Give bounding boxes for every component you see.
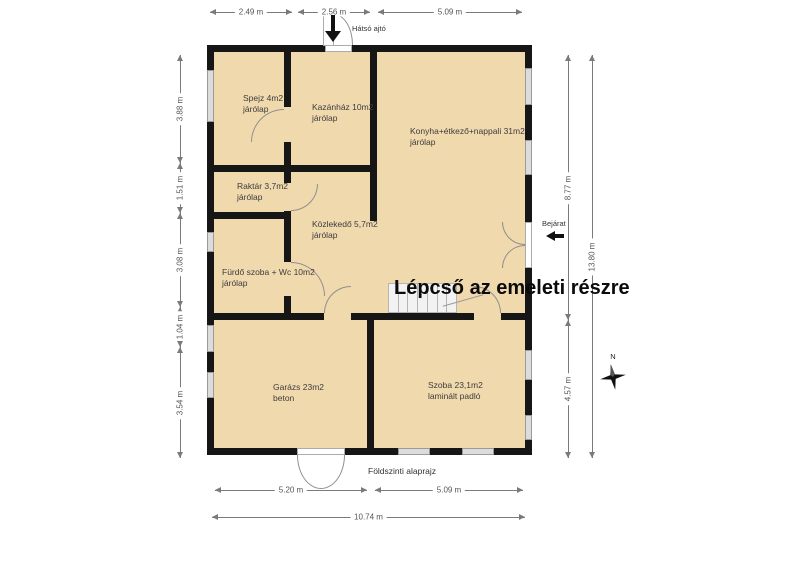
compass-north-label: N xyxy=(610,352,615,361)
room-label-spejz: Spejz 4m2 járólap xyxy=(243,93,283,115)
door-arc-garazs xyxy=(324,286,351,313)
wall-garazs-szoba xyxy=(367,313,374,455)
entrance-label: Bejárat xyxy=(542,219,566,228)
entrance-arrow-stem-icon xyxy=(555,234,564,238)
window-konyha-2 xyxy=(525,140,532,175)
compass-icon: N xyxy=(598,350,628,394)
window-szoba-1 xyxy=(525,350,532,380)
wall-kazanhaz-konyha xyxy=(370,45,377,221)
window-szoba-2 xyxy=(525,415,532,440)
plan-title: Földszinti alaprajz xyxy=(368,466,436,476)
window-furdo xyxy=(207,232,214,252)
floorplan-canvas: Spejz 4m2 járólap Kazánház 10m2 járólap … xyxy=(207,45,532,455)
dim-left-3: 3.08 m xyxy=(180,213,181,307)
window-szoba-3 xyxy=(398,448,430,455)
garage-door-leaf-left xyxy=(297,455,321,489)
wall-middle-3 xyxy=(501,313,532,320)
window-garazs-2 xyxy=(207,372,214,398)
door-gap-backdoor xyxy=(325,45,352,52)
room-label-konyha: Konyha+étkező+nappali 31m2 járólap xyxy=(410,126,525,148)
dim-bottom-outer: 10.74 m xyxy=(212,517,525,518)
window-szoba-4 xyxy=(462,448,494,455)
back-door-label: Hátsó ajtó xyxy=(352,24,386,33)
dim-top-1: 2.49 m xyxy=(210,12,292,13)
room-label-szoba: Szoba 23,1m2 laminált padló xyxy=(428,380,483,402)
wall-middle-1 xyxy=(207,313,324,320)
dim-right-2: 4.57 m xyxy=(568,320,569,458)
garage-door-leaf-right xyxy=(321,455,345,489)
back-door-arrowhead-icon xyxy=(325,31,341,42)
door-arc-raktar xyxy=(291,184,318,211)
dim-right-outer: 13.80 m xyxy=(592,55,593,458)
room-label-furdo: Fürdő szoba + Wc 10m2 járólap xyxy=(222,267,315,289)
door-gap-garage xyxy=(297,448,345,455)
dim-bottom-1: 5.20 m xyxy=(215,490,367,491)
dim-bottom-2: 5.09 m xyxy=(375,490,523,491)
door-arc-entrance-top xyxy=(502,222,525,245)
door-gap-entrance xyxy=(525,222,532,268)
door-arc-entrance-bottom xyxy=(502,245,525,268)
stairs-note: Lépcső az emeleti részre xyxy=(394,277,630,300)
dim-left-4: 1.04 m xyxy=(180,307,181,347)
window-spejz xyxy=(207,70,214,122)
dim-left-5: 3.54 m xyxy=(180,347,181,458)
wall-spejz-bottom xyxy=(207,165,377,172)
wall-raktar-bottom xyxy=(207,212,291,219)
window-konyha-1 xyxy=(525,68,532,105)
entrance-arrow-icon xyxy=(546,231,555,241)
dim-top-2: 2.56 m xyxy=(298,12,370,13)
room-label-garazs: Garázs 23m2 beton xyxy=(273,382,324,404)
dim-top-3: 5.09 m xyxy=(378,12,522,13)
room-label-kozlekedo: Közlekedő 5,7m2 járólap xyxy=(312,219,378,241)
window-garazs-1 xyxy=(207,325,214,352)
room-label-kazanhaz: Kazánház 10m2 járólap xyxy=(312,102,373,124)
door-gap-spejz xyxy=(284,107,291,142)
dim-left-1: 3.88 m xyxy=(180,55,181,163)
dim-left-2: 1.51 m xyxy=(180,163,181,213)
room-label-raktar: Raktár 3,7m2 járólap xyxy=(237,181,288,203)
